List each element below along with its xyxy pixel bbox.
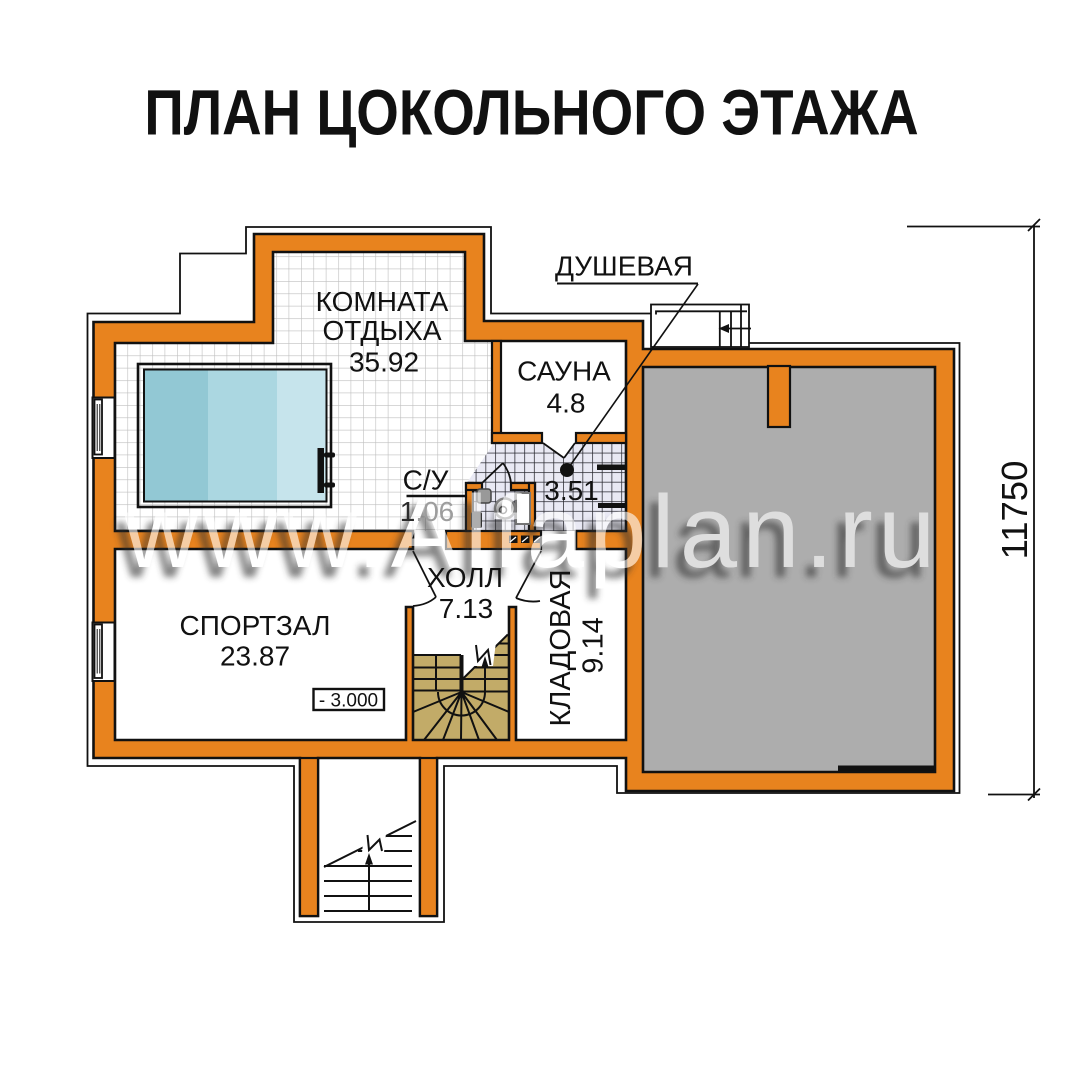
svg-text:3.51: 3.51 <box>544 475 599 506</box>
svg-text:ДУШЕВАЯ: ДУШЕВАЯ <box>555 251 693 282</box>
svg-text:11750: 11750 <box>994 461 1035 560</box>
svg-text:С/У: С/У <box>403 465 449 496</box>
svg-text:КЛАДОВАЯ: КЛАДОВАЯ <box>545 569 577 726</box>
svg-text:- 3.000: - 3.000 <box>319 691 378 712</box>
svg-text:САУНА: САУНА <box>517 356 611 387</box>
svg-text:35.92: 35.92 <box>349 347 419 378</box>
svg-text:9.14: 9.14 <box>578 617 610 673</box>
svg-text:www.Alfaplan.ru: www.Alfaplan.ru <box>123 474 941 589</box>
svg-text:ПЛАН ЦОКОЛЬНОГО ЭТАЖА: ПЛАН ЦОКОЛЬНОГО ЭТАЖА <box>144 76 918 148</box>
svg-text:4.8: 4.8 <box>547 388 586 419</box>
svg-text:23.87: 23.87 <box>220 641 290 672</box>
svg-text:7.13: 7.13 <box>439 593 494 624</box>
svg-text:СПОРТЗАЛ: СПОРТЗАЛ <box>180 610 331 641</box>
svg-text:1.06: 1.06 <box>400 496 455 527</box>
svg-text:ХОЛЛ: ХОЛЛ <box>427 562 503 593</box>
svg-text:КОМНАТА: КОМНАТА <box>316 286 449 317</box>
svg-text:ОТДЫХА: ОТДЫХА <box>322 315 441 346</box>
